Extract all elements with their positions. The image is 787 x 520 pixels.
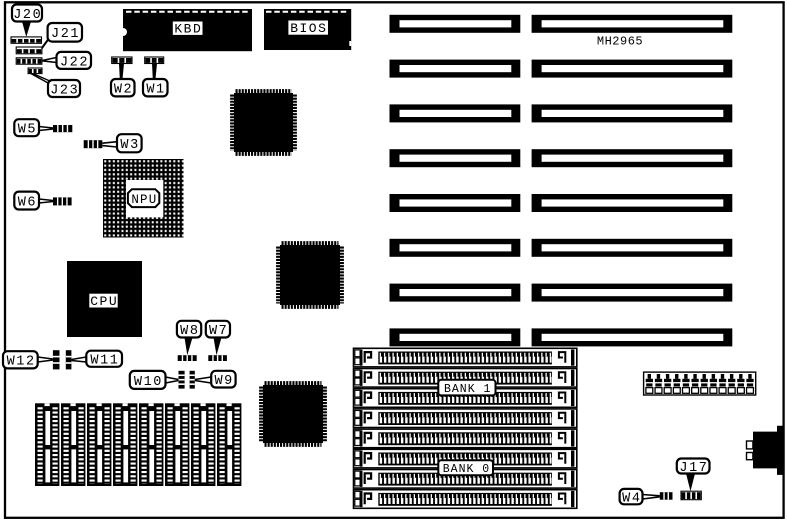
svg-text:BANK 0: BANK 0 xyxy=(443,463,490,476)
svg-text:W12: W12 xyxy=(7,355,36,370)
svg-text:W10: W10 xyxy=(134,375,163,390)
svg-text:W2: W2 xyxy=(114,83,133,98)
svg-text:W3: W3 xyxy=(120,138,139,153)
svg-text:J21: J21 xyxy=(51,27,80,42)
svg-text:W9: W9 xyxy=(214,374,233,389)
svg-text:J20: J20 xyxy=(13,8,42,23)
svg-text:MH2965: MH2965 xyxy=(597,35,643,49)
svg-text:J22: J22 xyxy=(60,55,89,70)
svg-text:BIOS: BIOS xyxy=(290,21,327,36)
svg-text:NPU: NPU xyxy=(131,193,157,207)
svg-text:KBD: KBD xyxy=(174,22,202,37)
svg-text:W6: W6 xyxy=(18,195,37,210)
svg-text:J23: J23 xyxy=(50,83,79,98)
svg-text:W4: W4 xyxy=(622,491,641,506)
svg-text:W11: W11 xyxy=(90,354,119,369)
svg-text:W5: W5 xyxy=(18,123,37,138)
svg-text:W8: W8 xyxy=(180,324,199,339)
svg-text:W7: W7 xyxy=(209,324,228,339)
svg-text:W1: W1 xyxy=(146,83,165,98)
svg-text:CPU: CPU xyxy=(90,294,118,309)
svg-text:BANK 1: BANK 1 xyxy=(444,383,491,396)
